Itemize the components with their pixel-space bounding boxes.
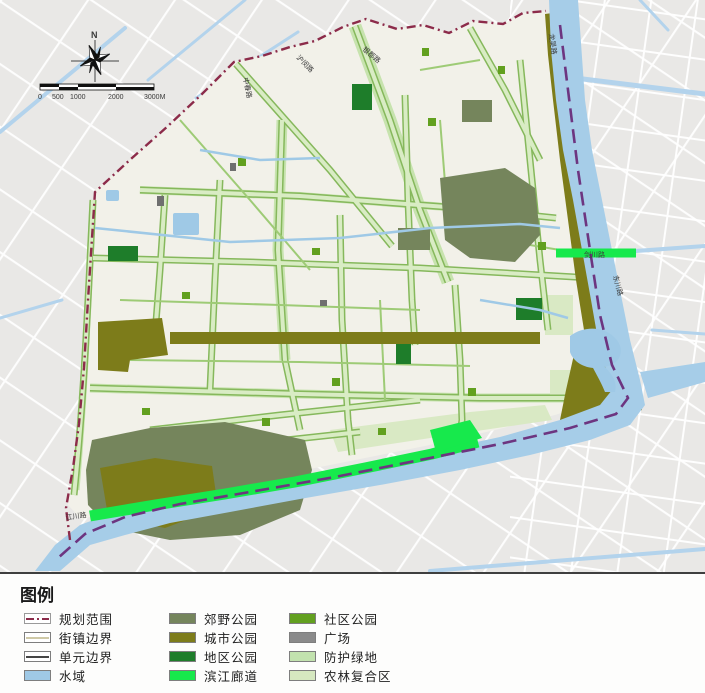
legend-label: 郊野公园	[204, 609, 258, 628]
riverside-corridor-swatch	[169, 670, 196, 681]
legend-label: 农林复合区	[324, 666, 392, 685]
legend-item-square: 广场	[289, 628, 392, 647]
legend-item-riverside-corridor: 滨江廊道	[169, 666, 258, 685]
map-canvas: 沪闵路 银都路 中春路 龙吴路 剑川路 东川路 江川路 N	[0, 0, 705, 572]
legend-label: 广场	[324, 628, 351, 647]
legend-label: 防护绿地	[324, 647, 378, 666]
legend-column-boundaries: 规划范围 街镇边界 单元边界 水域	[24, 609, 113, 685]
road-label: 剑川路	[584, 250, 605, 259]
district-park-swatch	[169, 651, 196, 662]
community-park-swatch	[289, 613, 316, 624]
legend-item-water: 水域	[24, 666, 113, 685]
square-swatch	[289, 632, 316, 643]
protective-green-swatch	[289, 651, 316, 662]
map-svg: 沪闵路 银都路 中春路 龙吴路 剑川路 东川路 江川路 N	[0, 0, 705, 572]
legend-title: 图例	[20, 581, 54, 606]
scale-tick: 2000	[108, 94, 124, 101]
scale-tick: 1000	[70, 94, 86, 101]
legend-item-protective-green: 防护绿地	[289, 647, 392, 666]
legend-label: 地区公园	[204, 647, 258, 666]
north-label: N	[91, 30, 98, 40]
legend-label: 滨江廊道	[204, 666, 258, 685]
scale-tick: 500	[52, 94, 64, 101]
legend-item-town-boundary: 街镇边界	[24, 628, 113, 647]
planning-map-page: 沪闵路 银都路 中春路 龙吴路 剑川路 东川路 江川路 N	[0, 0, 705, 693]
scale-tick: 3000M	[144, 94, 166, 101]
legend-label: 街镇边界	[59, 628, 113, 647]
legend-item-district-park: 地区公园	[169, 647, 258, 666]
planning-scope-swatch	[24, 613, 51, 624]
city-park-swatch	[169, 632, 196, 643]
legend-item-country-park: 郊野公园	[169, 609, 258, 628]
legend-item-planning-scope: 规划范围	[24, 609, 113, 628]
agroforestry-swatch	[289, 670, 316, 681]
legend-label: 水域	[59, 666, 86, 685]
legend-label: 规划范围	[59, 609, 113, 628]
legend-item-city-park: 城市公园	[169, 628, 258, 647]
legend-panel: 图例 规划范围 街镇边界 单元边界 水域 郊野公园	[0, 572, 705, 693]
legend-label: 城市公园	[204, 628, 258, 647]
unit-boundary-swatch	[24, 651, 51, 662]
scale-tick: 0	[38, 94, 42, 101]
legend-label: 单元边界	[59, 647, 113, 666]
legend-item-community-park: 社区公园	[289, 609, 392, 628]
country-park-swatch	[169, 613, 196, 624]
legend-label: 社区公园	[324, 609, 378, 628]
town-boundary-swatch	[24, 632, 51, 643]
legend-item-unit-boundary: 单元边界	[24, 647, 113, 666]
legend-column-parks-2: 社区公园 广场 防护绿地 农林复合区	[289, 609, 392, 685]
legend-column-parks-1: 郊野公园 城市公园 地区公园 滨江廊道	[169, 609, 258, 685]
legend-item-agroforestry: 农林复合区	[289, 666, 392, 685]
water-swatch	[24, 670, 51, 681]
